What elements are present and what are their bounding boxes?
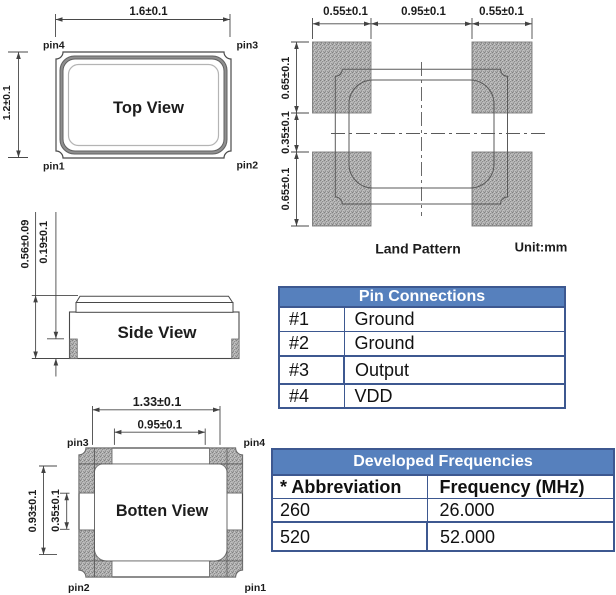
svg-text:0.19±0.1: 0.19±0.1 (38, 221, 50, 264)
svg-text:0.93±0.1: 0.93±0.1 (27, 490, 39, 533)
svg-text:Land Pattern: Land Pattern (375, 241, 461, 257)
svg-text:1.33±0.1: 1.33±0.1 (133, 395, 182, 409)
svg-text:Unit:mm: Unit:mm (515, 240, 568, 255)
svg-text:Botten View: Botten View (116, 502, 209, 520)
svg-text:Side View: Side View (117, 323, 197, 342)
svg-text:0.35±0.1: 0.35±0.1 (280, 111, 292, 154)
svg-text:pin3: pin3 (237, 40, 259, 52)
svg-text:pin3: pin3 (67, 437, 89, 449)
svg-text:Top View: Top View (113, 99, 184, 117)
svg-text:0.65±0.1: 0.65±0.1 (280, 57, 292, 100)
svg-text:0.35±0.1: 0.35±0.1 (50, 489, 62, 532)
svg-text:0.55±0.1: 0.55±0.1 (323, 6, 368, 18)
svg-text:pin1: pin1 (245, 582, 267, 594)
svg-text:1.2±0.1: 1.2±0.1 (1, 85, 13, 120)
svg-text:0.56±0.09: 0.56±0.09 (19, 220, 31, 269)
svg-text:pin2: pin2 (68, 582, 90, 594)
svg-text:0.55±0.1: 0.55±0.1 (479, 6, 524, 18)
svg-text:pin4: pin4 (43, 40, 65, 52)
svg-text:pin2: pin2 (237, 160, 259, 172)
svg-text:pin4: pin4 (244, 437, 266, 449)
svg-text:1.6±0.1: 1.6±0.1 (129, 6, 168, 18)
svg-text:0.95±0.1: 0.95±0.1 (137, 420, 182, 432)
svg-text:pin1: pin1 (43, 161, 65, 173)
svg-text:0.95±0.1: 0.95±0.1 (401, 6, 446, 18)
svg-text:0.65±0.1: 0.65±0.1 (280, 168, 292, 211)
